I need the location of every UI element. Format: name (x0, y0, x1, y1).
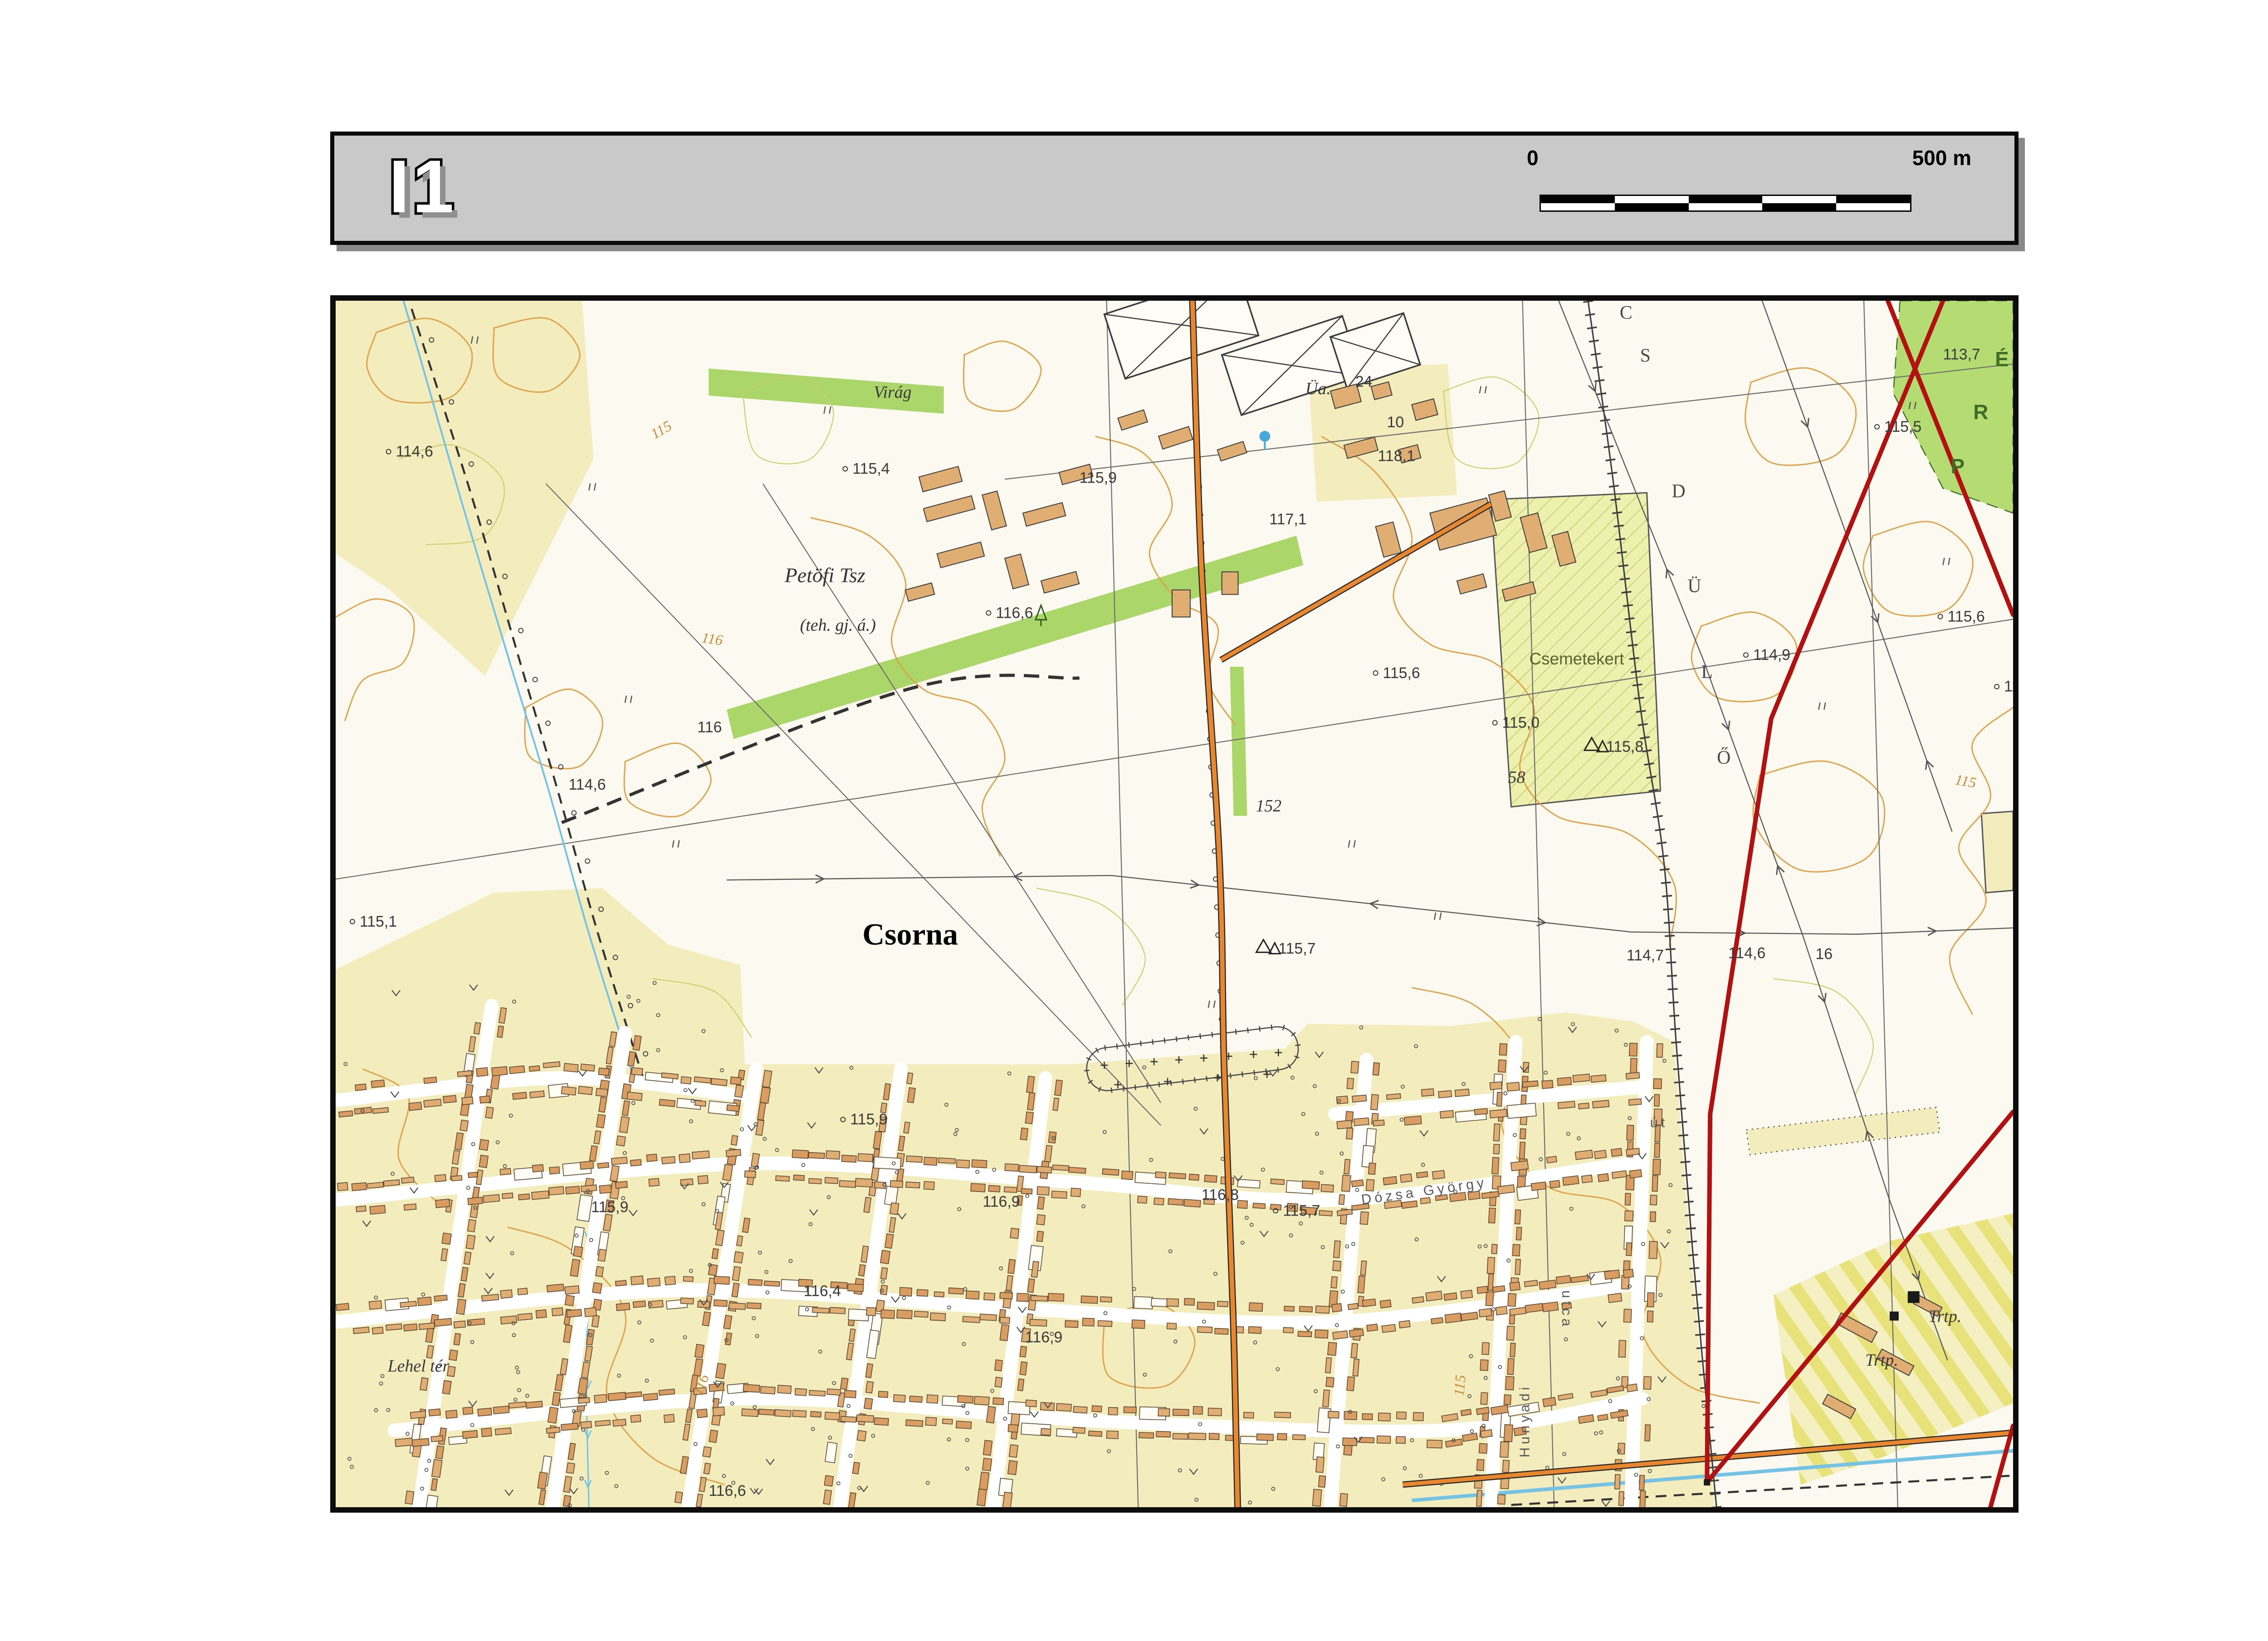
building (1172, 590, 1190, 617)
map-label: 115,8 (1606, 738, 1643, 755)
scale-end-label: 500 m (1912, 146, 1971, 170)
map-label: 115,4 (852, 460, 890, 478)
map-label: 115,9 (1080, 469, 1117, 486)
map-label: 114,7 (1627, 947, 1664, 964)
map-label: 116,8 (1202, 1187, 1239, 1204)
topographic-map: VirágÜa.2410118,1117,1115,4115,9114,6115… (336, 301, 2013, 1507)
building-solid (1908, 1291, 1920, 1303)
map-label: 116,4 (804, 1283, 841, 1300)
scale-cell (1615, 203, 1689, 210)
map-label: 115,1 (360, 913, 397, 930)
map-label: út (1650, 1114, 1668, 1130)
map-label: 115,7 (1283, 1202, 1320, 1219)
map-label: 115,9 (850, 1111, 887, 1128)
map-label: Ü (1687, 576, 1701, 597)
well-symbol (1259, 431, 1270, 442)
map-label: S (1640, 346, 1651, 366)
building (1222, 572, 1238, 595)
scale-cell (1762, 196, 1836, 203)
map-label: utca (1559, 1290, 1575, 1329)
map-label: (teh. gj. á.) (800, 615, 876, 635)
building-solid (1704, 1479, 1710, 1485)
map-label: 24 (1355, 373, 1373, 390)
scale-cell (1541, 196, 1615, 203)
scale-cell (1689, 203, 1763, 210)
scale-cell (1836, 196, 1910, 203)
area-edge-patch (1981, 811, 2013, 893)
map-label: R (1973, 400, 1990, 424)
scale-cell (1689, 196, 1763, 203)
map-label: 115,9 (591, 1198, 628, 1216)
map-label: 115,6 (1383, 664, 1420, 682)
map-label: D (1672, 481, 1685, 502)
map-label: 117,1 (1269, 511, 1306, 528)
map-label: Virág (874, 383, 911, 402)
map-label: 115,6 (1947, 608, 1984, 625)
scale-bar: 0 500 m (1518, 146, 1971, 232)
map-label: 58 (1508, 768, 1525, 787)
map-sheet-header: I1 0 500 m (330, 132, 2019, 245)
map-label: Ő (1717, 747, 1730, 768)
map-label: Lehel tér (387, 1357, 450, 1376)
scale-cell (1541, 203, 1615, 210)
building-solid (1890, 1312, 1899, 1321)
scale-zero-label: 0 (1527, 146, 1539, 170)
map-label: Csorna (862, 918, 958, 952)
map-label: 118,1 (1378, 448, 1415, 465)
map-label: Csemetekert (1529, 650, 1624, 668)
map-label: 114,9 (1753, 646, 1790, 664)
map-label: 115 (1451, 1374, 1469, 1397)
map-label: Petöfi Tsz (784, 564, 865, 587)
map-label: Üa. (1305, 379, 1331, 398)
map-label: 115,5 (1884, 418, 1921, 435)
map-label: C (1620, 303, 1633, 323)
map-label: 115,0 (1502, 714, 1540, 731)
map-label: É (1995, 347, 2011, 371)
map-frame: VirágÜa.2410118,1117,1115,4115,9114,6115… (330, 295, 2019, 1513)
map-label: 115,7 (1278, 940, 1315, 957)
map-label: Hunyadi (1516, 1384, 1532, 1457)
map-label: Trtp. (1865, 1351, 1898, 1370)
map-label: 116,6 (996, 604, 1033, 621)
map-label: Trtp. (1929, 1307, 1962, 1326)
scale-cell (1762, 203, 1836, 210)
map-label: P (1950, 455, 1966, 478)
scanned-map-page: I1 0 500 m VirágÜa.2410118,1117,1115,411… (0, 0, 2268, 1641)
sheet-label: I1 (389, 144, 457, 230)
map-label: 114,6 (568, 776, 606, 793)
map-label: 16 (1815, 946, 1833, 963)
map-label: 113,7 (1943, 346, 1980, 363)
map-label: 115, (2004, 678, 2013, 695)
map-label: 116,9 (982, 1193, 1020, 1210)
scale-cell (1836, 203, 1910, 210)
map-label: 114,6 (1728, 945, 1765, 962)
scale-bar-checker (1540, 195, 1911, 212)
map-label: 114,6 (396, 443, 433, 460)
map-label: 116 (697, 718, 722, 736)
map-label: 116,9 (1025, 1328, 1062, 1346)
scale-cell (1615, 196, 1689, 203)
map-label: 152 (1256, 796, 1281, 816)
map-label: L (1701, 662, 1713, 683)
map-label: 10 (1387, 414, 1404, 431)
map-label: 116 (700, 630, 724, 649)
map-label: 116,6 (709, 1482, 746, 1499)
